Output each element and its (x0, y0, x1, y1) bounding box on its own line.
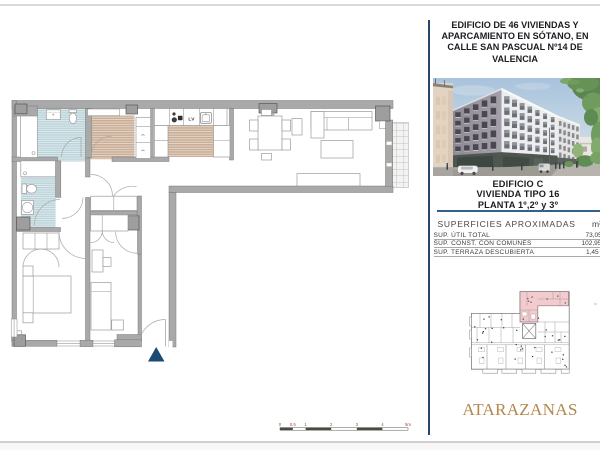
svg-text:0: 0 (279, 422, 282, 427)
svg-text:5m: 5m (405, 422, 411, 427)
svg-text:4: 4 (381, 422, 384, 427)
svg-text:2: 2 (330, 422, 333, 427)
svg-text:LV: LV (188, 116, 195, 122)
svg-text:0.5: 0.5 (290, 422, 297, 427)
svg-text:1: 1 (304, 422, 307, 427)
svg-text:3: 3 (356, 422, 359, 427)
